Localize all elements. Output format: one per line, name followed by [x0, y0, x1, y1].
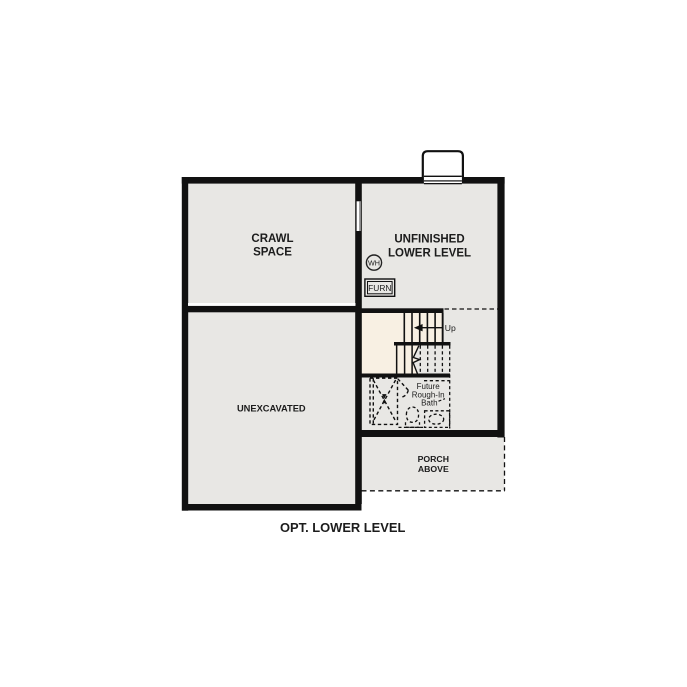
svg-text:OPT. LOWER LEVEL: OPT. LOWER LEVEL [280, 520, 405, 535]
svg-text:SPACE: SPACE [253, 247, 292, 259]
svg-text:UNEXCAVATED: UNEXCAVATED [237, 404, 306, 414]
svg-text:Up: Up [445, 323, 456, 333]
svg-text:PORCH: PORCH [418, 454, 449, 464]
svg-text:UNFINISHED: UNFINISHED [394, 233, 464, 245]
svg-text:FURN: FURN [368, 283, 391, 293]
svg-text:ABOVE: ABOVE [418, 464, 449, 474]
svg-text:LOWER LEVEL: LOWER LEVEL [388, 247, 471, 259]
svg-text:CRAWL: CRAWL [251, 233, 293, 245]
svg-text:WH: WH [368, 258, 380, 267]
